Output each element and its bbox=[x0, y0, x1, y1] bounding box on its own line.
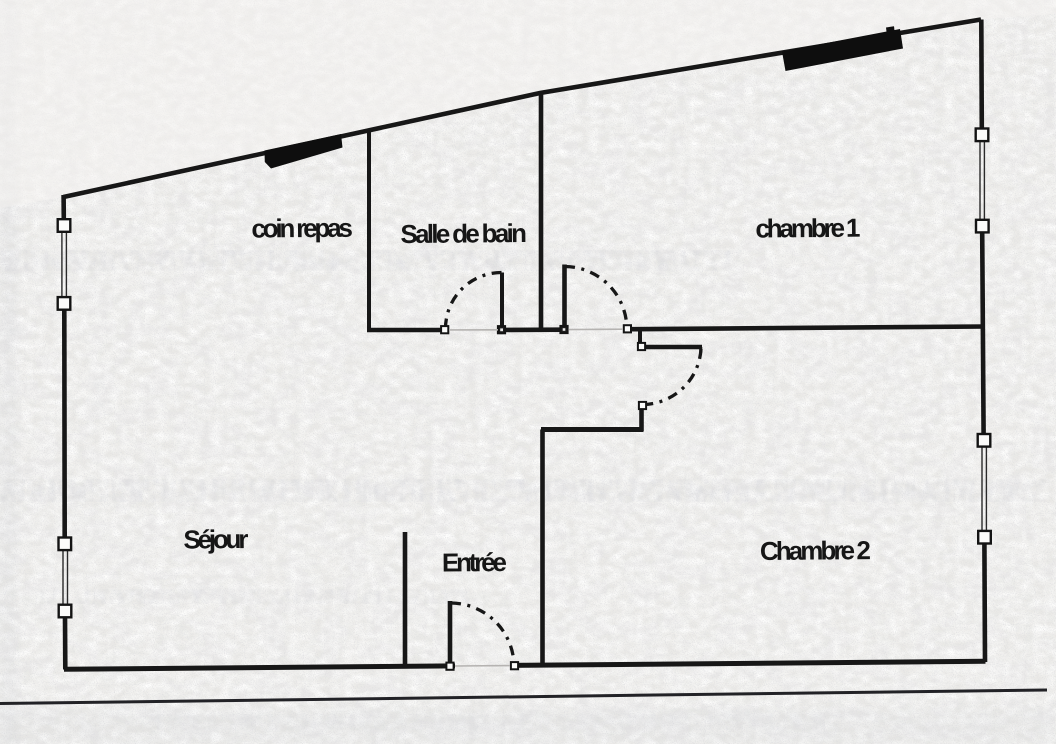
svg-text:Entrée: Entrée bbox=[442, 547, 507, 578]
svg-text:Séjour: Séjour bbox=[183, 524, 248, 555]
svg-text:Chambre 2: Chambre 2 bbox=[760, 535, 871, 566]
svg-text:Salle de bain: Salle de bain bbox=[400, 218, 527, 249]
svg-text:chambre 1: chambre 1 bbox=[755, 213, 860, 244]
svg-text:coin repas: coin repas bbox=[251, 213, 353, 244]
